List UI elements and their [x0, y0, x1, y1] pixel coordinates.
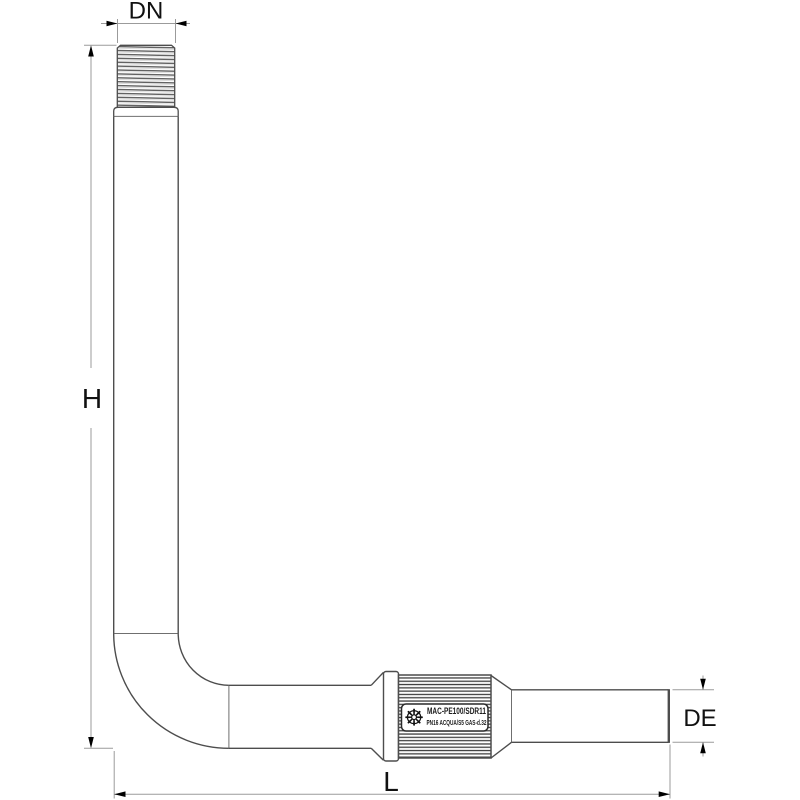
coupling-marking-line2: PN16 ACQUA/S5 GAS-d.32 — [427, 718, 487, 727]
elbow-inner-arc — [178, 634, 229, 686]
dn-label: DN — [129, 0, 164, 25]
de-label: DE — [683, 705, 716, 732]
coupling-cone-top — [491, 676, 512, 690]
h-arrow-bottom — [88, 737, 94, 748]
coupling-collar — [384, 672, 399, 762]
dn-arrow-right — [176, 21, 187, 27]
dimension-dn: DN — [101, 0, 190, 43]
thread-block — [117, 45, 174, 107]
de-arrow-top — [700, 679, 706, 690]
pipe-fitting-drawing: ☸ MAC-PE100/SDR11 PN16 ACQUA/S5 GAS-d.32… — [0, 0, 800, 800]
thread-shoulder — [114, 107, 179, 116]
coupling-marking-line1: MAC-PE100/SDR11 — [427, 706, 486, 716]
elbow-outer-arc — [114, 634, 229, 749]
compression-coupling: ☸ MAC-PE100/SDR11 PN16 ACQUA/S5 GAS-d.32 — [371, 672, 511, 762]
dimension-h: H — [82, 45, 117, 748]
threaded-male-end — [114, 45, 179, 116]
h-label: H — [82, 383, 102, 414]
dimension-de: DE — [673, 676, 717, 757]
l-label: L — [383, 766, 399, 797]
l-arrow-left — [114, 791, 125, 797]
h-arrow-top — [88, 45, 94, 56]
dn-arrow-left — [107, 21, 118, 27]
drawing-canvas: ☸ MAC-PE100/SDR11 PN16 ACQUA/S5 GAS-d.32… — [0, 0, 800, 800]
coupling-flare-bottom — [371, 748, 383, 760]
horizontal-pipe — [229, 685, 371, 748]
coupling-cone-bottom — [491, 742, 512, 758]
brand-wheel-icon: ☸ — [404, 705, 425, 731]
vertical-pipe — [114, 116, 179, 633]
de-arrow-bottom — [700, 742, 706, 753]
coupling-flare-top — [371, 672, 383, 685]
spigot-end — [512, 689, 669, 743]
elbow-bend — [114, 634, 229, 749]
l-arrow-right — [659, 791, 670, 797]
